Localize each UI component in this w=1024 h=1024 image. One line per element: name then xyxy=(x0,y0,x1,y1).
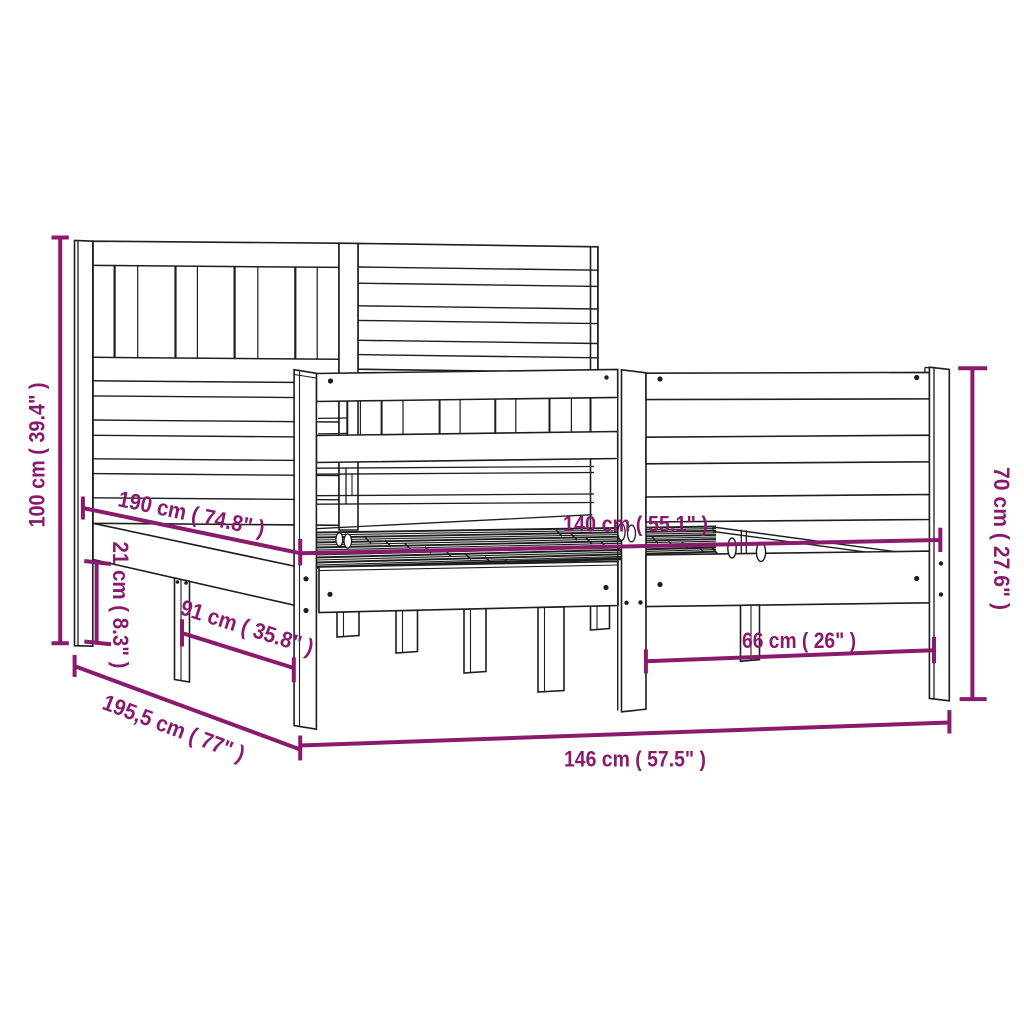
svg-text:66 cm ( 26" ): 66 cm ( 26" ) xyxy=(742,628,856,653)
svg-text:21 cm ( 8.3" ): 21 cm ( 8.3" ) xyxy=(108,542,133,669)
svg-text:100 cm ( 39.4" ): 100 cm ( 39.4" ) xyxy=(25,383,50,528)
svg-text:70 cm ( 27.6" ): 70 cm ( 27.6" ) xyxy=(989,467,1014,610)
svg-text:146 cm ( 57.5" ): 146 cm ( 57.5" ) xyxy=(564,747,706,772)
svg-text:140 cm ( 55.1" ): 140 cm ( 55.1" ) xyxy=(563,511,708,536)
